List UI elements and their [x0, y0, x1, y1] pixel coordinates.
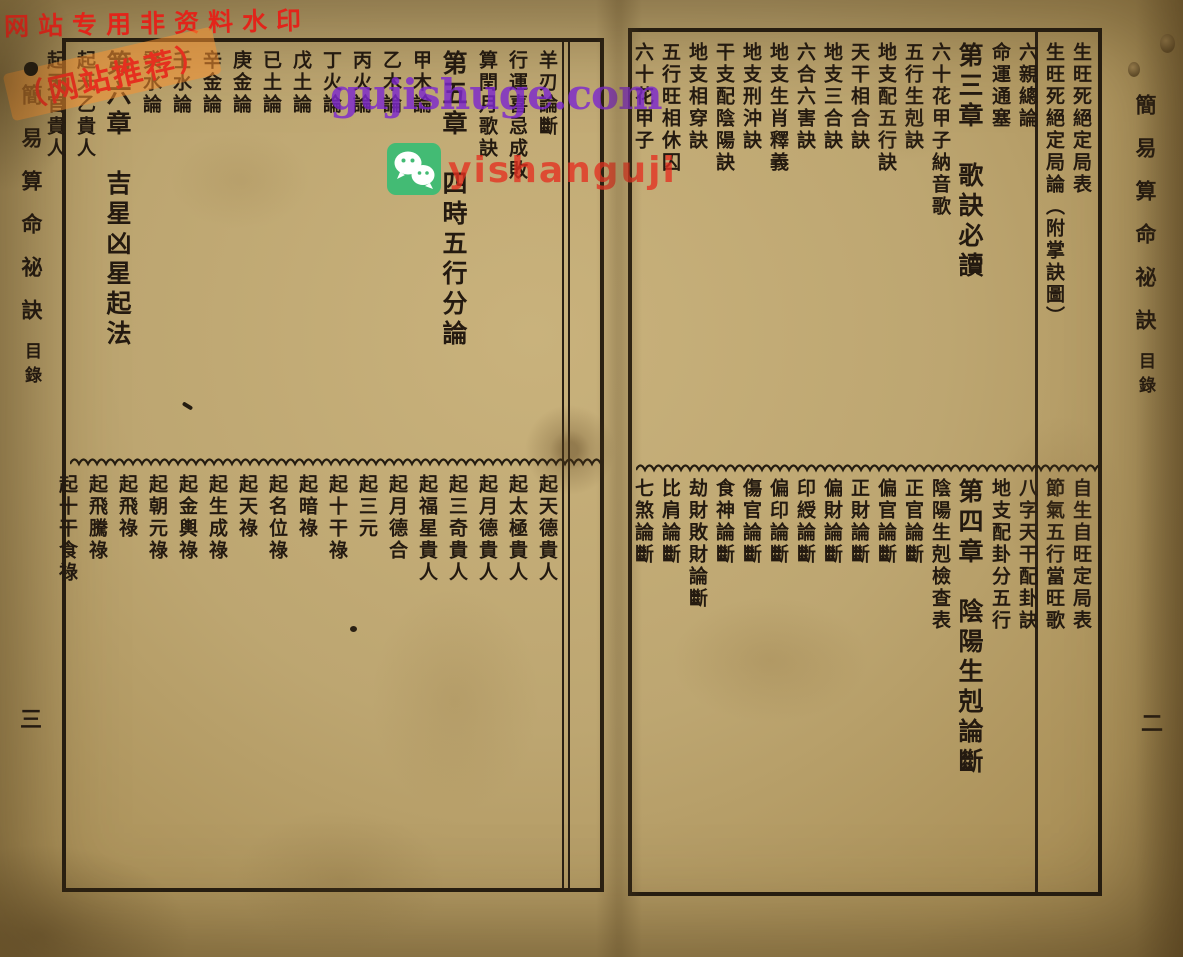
- toc-entry: 起暗祿: [297, 474, 318, 874]
- left-page-bottom-section: 起天德貴人 起太極貴人 起月德貴人 起三奇貴人 起福星貴人 起月德合 起三元 起…: [72, 474, 558, 874]
- toc-entry: 偏官論斷: [876, 478, 897, 878]
- toc-entry: 陰陽生剋檢查表: [930, 478, 951, 878]
- toc-entry: 偏印論斷: [768, 478, 789, 878]
- toc-entry: 傷官論斷: [741, 478, 762, 878]
- right-page-top-section: 生旺死絕定局表 生旺死絕定局論（附掌訣圖） 六親總論 命運通塞 第三章 歌訣必讀…: [640, 42, 1092, 454]
- book-subtitle-text: 目錄: [21, 342, 57, 390]
- left-page-number: 三: [20, 702, 42, 734]
- chapter-heading: 第三章 歌訣必讀: [957, 42, 984, 454]
- toc-entry: 地支相穿訣: [687, 42, 708, 454]
- toc-entry: 六親總論: [1017, 42, 1038, 454]
- watermark-top-text: 网站专用非资料水印: [4, 1, 311, 43]
- toc-entry: 地支配五行訣: [876, 42, 897, 454]
- toc-entry: 地支配卦分五行: [990, 478, 1011, 878]
- toc-entry: 起飛祿: [117, 474, 138, 874]
- toc-entry: 正官論斷: [903, 478, 924, 878]
- right-page-number: 二: [1141, 706, 1163, 738]
- toc-entry: 庚金論: [231, 50, 252, 458]
- toc-entry: 地支三合訣: [822, 42, 843, 454]
- toc-entry: 干支配陰陽訣: [714, 42, 735, 454]
- toc-entry: 起天乙貴人: [75, 50, 96, 458]
- toc-entry: 印綬論斷: [795, 478, 816, 878]
- toc-entry: 地支生肖釋義: [768, 42, 789, 454]
- section-divider-wave: [70, 456, 604, 468]
- toc-entry: 辛金論: [201, 50, 222, 458]
- toc-entry: 五行生剋訣: [903, 42, 924, 454]
- toc-entry: 六合六害訣: [795, 42, 816, 454]
- paper-speck: [350, 626, 357, 632]
- wechat-icon: [386, 142, 442, 196]
- book-title-text: 簡易算命祕訣: [1133, 94, 1157, 352]
- toc-entry: 七煞論斷: [633, 478, 654, 878]
- toc-entry: 偏財論斷: [822, 478, 843, 878]
- toc-entry: 起月德合: [387, 474, 408, 874]
- toc-entry: 已土論: [261, 50, 282, 458]
- toc-entry: 起十干食祿: [57, 474, 78, 874]
- toc-entry: 起金輿祿: [177, 474, 198, 874]
- toc-entry: 天干相合訣: [849, 42, 870, 454]
- toc-entry: 比肩論斷: [660, 478, 681, 878]
- book-title-left-margin: 簡易算命祕訣目錄: [16, 84, 46, 390]
- toc-entry: 起天祿: [237, 474, 258, 874]
- toc-entry: 命運通塞: [990, 42, 1011, 454]
- toc-entry: 地支刑沖訣: [741, 42, 762, 454]
- toc-entry: 起福星貴人: [417, 474, 438, 874]
- book-title-text: 簡易算命祕訣: [19, 84, 43, 342]
- chapter-heading: 第六章 吉星凶星起法: [105, 50, 132, 458]
- scanned-book-spread: 生旺死絕定局表 生旺死絕定局論（附掌訣圖） 六親總論 命運通塞 第三章 歌訣必讀…: [0, 0, 1183, 957]
- watermark-site-url: gujishuge.com: [330, 70, 662, 119]
- toc-entry: 節氣五行當旺歌: [1044, 478, 1065, 878]
- toc-entry: 生旺死絕定局表: [1071, 42, 1092, 454]
- toc-entry: 起天德貴人: [537, 474, 558, 874]
- wormhole: [1128, 62, 1140, 77]
- chapter-heading: 第四章 陰陽生剋論斷: [957, 478, 984, 878]
- right-page-frame: 生旺死絕定局表 生旺死絕定局論（附掌訣圖） 六親總論 命運通塞 第三章 歌訣必讀…: [628, 28, 1102, 896]
- toc-entry: 自生自旺定局表: [1071, 478, 1092, 878]
- toc-entry: 劫財敗財論斷: [687, 478, 708, 878]
- toc-entry: 壬水論: [171, 50, 192, 458]
- toc-entry: 起三元: [357, 474, 378, 874]
- toc-entry: 起月德貴人: [477, 474, 498, 874]
- toc-entry: 正財論斷: [849, 478, 870, 878]
- toc-entry: 起生成祿: [207, 474, 228, 874]
- toc-entry: 五行旺相休囚: [660, 42, 681, 454]
- toc-entry: 癸水論: [141, 50, 162, 458]
- toc-entry: 生旺死絕定局論（附掌訣圖）: [1044, 42, 1065, 454]
- toc-entry: 八字天干配卦訣: [1017, 478, 1038, 878]
- book-title-right-margin: 簡易算命祕訣目錄: [1130, 94, 1160, 400]
- toc-entry: 起朝元祿: [147, 474, 168, 874]
- right-page-bottom-section: 自生自旺定局表 節氣五行當旺歌 八字天干配卦訣 地支配卦分五行 第四章 陰陽生剋…: [640, 478, 1092, 878]
- toc-entry: 食神論斷: [714, 478, 735, 878]
- section-divider-wave: [636, 462, 1098, 474]
- toc-entry: 六十花甲子納音歌: [930, 42, 951, 454]
- toc-entry: 起名位祿: [267, 474, 288, 874]
- watermark-wechat-id: yishanguji: [448, 150, 677, 191]
- wormhole: [1160, 34, 1175, 53]
- book-subtitle-text: 目錄: [1135, 352, 1171, 400]
- toc-entry: 起飛騰祿: [87, 474, 108, 874]
- toc-entry: 起三奇貴人: [447, 474, 468, 874]
- toc-entry: 起太極貴人: [507, 474, 528, 874]
- toc-entry: 戊土論: [291, 50, 312, 458]
- toc-entry: 起十干祿: [327, 474, 348, 874]
